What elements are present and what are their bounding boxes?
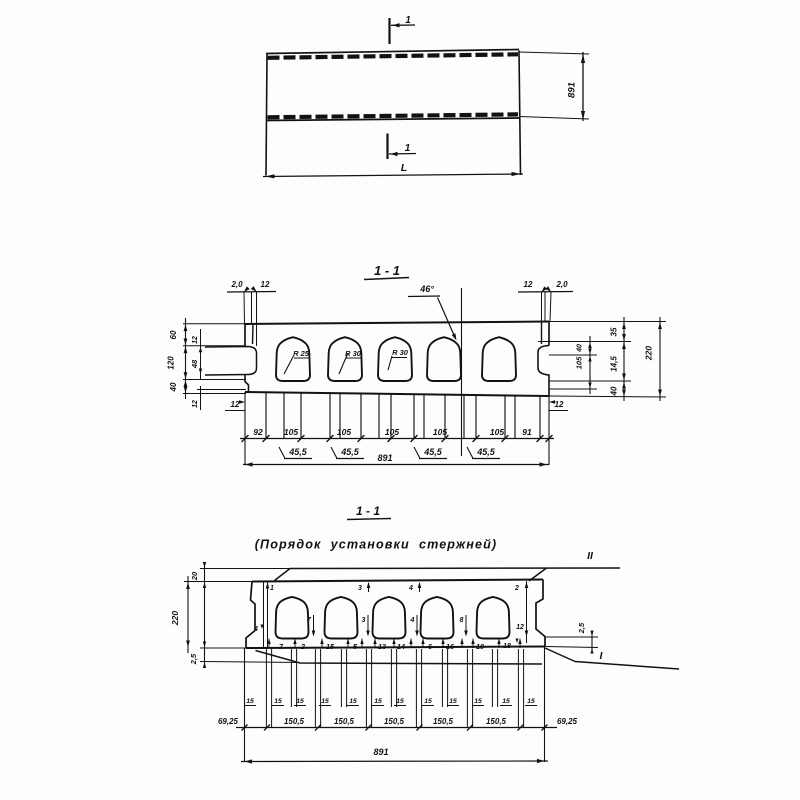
svg-text:14: 14 [397, 642, 405, 651]
svg-text:150,5: 150,5 [486, 717, 507, 726]
svg-text:40: 40 [169, 382, 178, 392]
svg-text:45,5: 45,5 [288, 447, 308, 457]
svg-text:8: 8 [460, 617, 464, 624]
svg-text:150,5: 150,5 [384, 717, 405, 726]
svg-text:891: 891 [377, 453, 392, 463]
svg-text:891: 891 [373, 747, 388, 757]
svg-text:15: 15 [321, 698, 329, 705]
svg-text:105: 105 [490, 427, 504, 437]
svg-text:120: 120 [167, 356, 176, 370]
svg-text:10: 10 [476, 642, 484, 651]
svg-text:R 30: R 30 [345, 349, 362, 358]
svg-text:R 30: R 30 [392, 348, 409, 357]
svg-text:14,5: 14,5 [610, 356, 619, 372]
svg-text:12: 12 [261, 280, 270, 289]
svg-text:(Порядок установки стержней): (Порядок установки стержней) [255, 538, 497, 552]
svg-text:II: II [587, 550, 594, 562]
svg-text:105: 105 [337, 427, 351, 437]
svg-text:3: 3 [358, 585, 362, 592]
svg-text:2,5: 2,5 [577, 622, 586, 634]
svg-text:220: 220 [170, 611, 180, 626]
svg-text:12: 12 [516, 624, 524, 631]
svg-text:45,5: 45,5 [340, 447, 360, 457]
svg-text:12: 12 [192, 336, 199, 344]
svg-text:150,5: 150,5 [284, 717, 305, 726]
svg-text:105: 105 [575, 356, 584, 369]
svg-text:15: 15 [396, 698, 404, 705]
svg-text:12: 12 [555, 400, 564, 409]
svg-text:48: 48 [190, 359, 199, 369]
svg-text:I: I [600, 650, 604, 662]
svg-text:15: 15 [502, 698, 510, 705]
svg-text:40: 40 [610, 386, 619, 396]
svg-text:15: 15 [424, 698, 432, 705]
svg-text:13: 13 [378, 642, 386, 651]
svg-text:891: 891 [567, 82, 578, 98]
svg-text:18: 18 [503, 643, 511, 650]
svg-text:91: 91 [522, 427, 532, 437]
svg-text:15: 15 [296, 698, 304, 705]
svg-text:12: 12 [231, 400, 240, 409]
svg-text:L: L [401, 162, 407, 174]
svg-text:15: 15 [326, 642, 335, 651]
svg-text:4: 4 [253, 626, 258, 633]
svg-text:12: 12 [192, 400, 199, 408]
svg-text:2: 2 [300, 642, 305, 651]
svg-text:12: 12 [524, 280, 533, 289]
svg-text:15: 15 [527, 698, 535, 705]
svg-text:R 25: R 25 [293, 349, 310, 358]
svg-text:105: 105 [433, 427, 447, 437]
svg-text:7: 7 [279, 642, 284, 651]
svg-text:1: 1 [270, 585, 274, 592]
svg-text:15: 15 [349, 698, 357, 705]
svg-text:69,25: 69,25 [557, 717, 578, 726]
svg-text:45,5: 45,5 [423, 447, 443, 457]
svg-text:105: 105 [385, 427, 399, 437]
svg-text:15: 15 [474, 698, 482, 705]
svg-text:46°: 46° [419, 284, 434, 294]
svg-text:150,5: 150,5 [433, 717, 454, 726]
svg-text:69,25: 69,25 [218, 717, 239, 726]
svg-text:105: 105 [284, 427, 298, 437]
svg-text:35: 35 [610, 327, 619, 336]
svg-text:7: 7 [307, 617, 312, 624]
svg-text:2: 2 [514, 585, 519, 592]
svg-text:4: 4 [410, 617, 415, 624]
svg-text:15: 15 [449, 698, 457, 705]
svg-text:15: 15 [246, 698, 254, 705]
svg-text:3: 3 [362, 617, 366, 624]
svg-text:1 - 1: 1 - 1 [374, 263, 400, 278]
svg-text:40: 40 [577, 344, 584, 353]
svg-text:15: 15 [374, 698, 382, 705]
svg-text:1 - 1: 1 - 1 [356, 504, 380, 518]
svg-text:2,0: 2,0 [555, 280, 568, 289]
svg-text:1: 1 [405, 15, 411, 26]
svg-text:20: 20 [190, 571, 199, 581]
svg-text:220: 220 [644, 346, 654, 361]
svg-text:92: 92 [253, 427, 263, 437]
svg-text:150,5: 150,5 [334, 717, 355, 726]
svg-text:15: 15 [274, 698, 282, 705]
svg-text:2,0: 2,0 [230, 280, 243, 289]
svg-text:2,5: 2,5 [189, 653, 198, 665]
svg-text:60: 60 [169, 330, 178, 339]
svg-text:45,5: 45,5 [476, 447, 496, 457]
svg-text:1: 1 [405, 143, 411, 154]
svg-text:4: 4 [408, 585, 413, 592]
